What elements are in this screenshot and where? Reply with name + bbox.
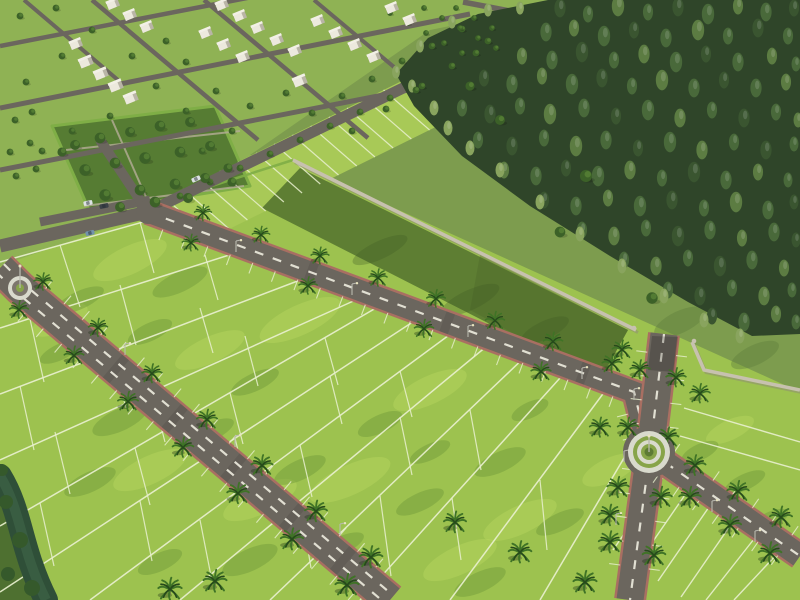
aerial-render: [0, 0, 800, 600]
scene-image: [0, 0, 800, 600]
